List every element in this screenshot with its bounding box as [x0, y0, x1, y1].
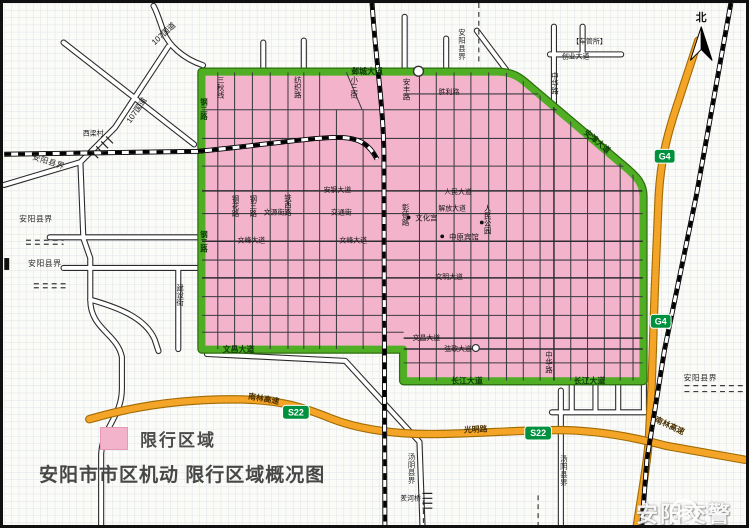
road-label: 钢二路: [199, 229, 208, 254]
road-label: 安阳县界: [683, 373, 717, 383]
road-label: 文化宫: [415, 213, 437, 223]
compass-north-label: 北: [696, 10, 707, 24]
road-label: 人民大道: [444, 187, 472, 196]
road-label: 汤阴县界: [559, 454, 568, 487]
poi-dot: [440, 234, 444, 238]
road-label: 纺织路: [293, 75, 302, 99]
road-label: 交通街: [331, 208, 352, 217]
road-label: 中原宾馆: [449, 231, 479, 241]
road-label: 文峰大道: [238, 235, 266, 244]
road-label: 安阳县界: [19, 213, 53, 223]
road-label: 安阳县界: [457, 27, 466, 61]
svg-text:S22: S22: [530, 428, 546, 438]
road-label: 建设街: [175, 282, 184, 307]
road-label: 【车管所】: [572, 37, 607, 46]
map-frame: G4G4S22S22 107国道107国道西梁村安阳县界安阳县界安阳县界安阳县界…: [0, 0, 749, 528]
road-label: 中华路: [550, 71, 559, 95]
svg-text:G4: G4: [659, 151, 671, 161]
svg-text:G4: G4: [655, 317, 667, 327]
highway-badge: S22: [283, 405, 310, 419]
highway-badge: G4: [654, 149, 675, 163]
road-label: 铁西路: [283, 192, 292, 216]
road-label: 钢花路: [231, 193, 240, 217]
road-label: 长江大道: [451, 376, 483, 386]
road-label: 羑河桥: [400, 493, 421, 502]
road-label: 弦歌大道: [444, 344, 472, 353]
road-label: 钢二路: [199, 96, 208, 121]
roundabout-xiange: [472, 345, 479, 352]
road-label: 光明路: [463, 423, 488, 434]
legend: 限行区域: [100, 426, 216, 451]
road-label: 西梁村: [83, 128, 104, 137]
road-label: 安阳县界: [28, 258, 62, 268]
road-label: 文源街: [264, 208, 285, 217]
road-label: 文昌大道: [223, 344, 255, 354]
road-label: 文明大道: [435, 272, 463, 281]
road-label: 安钢大道: [324, 185, 352, 194]
road-label: 中华路: [544, 350, 553, 374]
edge-mark: [4, 258, 9, 270]
highway-badge: G4: [650, 314, 671, 328]
road-label: 长江大道: [574, 376, 606, 386]
legend-label: 限行区域: [140, 426, 216, 451]
road-label: 文峰大道: [339, 235, 367, 244]
road-label: 小三街: [349, 75, 358, 100]
road-label: 创业大道: [562, 51, 590, 60]
road-label: 三秋线: [216, 76, 225, 98]
road-label: 解放大道: [438, 204, 466, 213]
road-label: 彰德路: [401, 202, 410, 226]
road-label: 钢三路: [249, 193, 258, 217]
road-label: 文昌大道: [413, 333, 441, 342]
road-label: 邺城大道: [351, 66, 383, 76]
page-title: 安阳市市区机动 限行区域概况图: [39, 460, 325, 487]
police-logo-icon: [636, 497, 732, 528]
road-label: 胜利路: [439, 87, 460, 96]
legend-swatch: [100, 427, 128, 450]
road-label: 汤阴县界: [407, 452, 416, 485]
watermark: 安阳交警: [636, 497, 732, 528]
highway-badge: S22: [525, 426, 552, 440]
svg-text:S22: S22: [288, 407, 304, 417]
road-label: 人民公园: [483, 204, 492, 235]
road-label: 安丰路: [402, 77, 411, 101]
roundabout-yecheng: [414, 66, 424, 76]
